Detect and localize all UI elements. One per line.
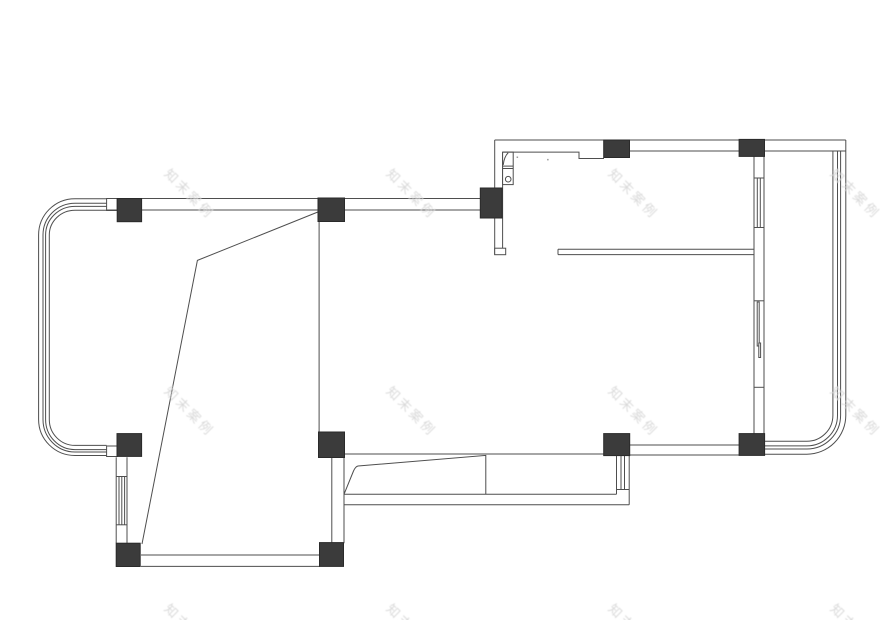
svg-text:知末案例: 知末案例 <box>161 384 217 440</box>
svg-text:知末案例: 知末案例 <box>605 601 661 620</box>
svg-text:知末案例: 知末案例 <box>605 166 661 222</box>
svg-text:知末案例: 知末案例 <box>383 166 439 222</box>
svg-text:知末案例: 知末案例 <box>827 601 880 620</box>
svg-text:知末案例: 知末案例 <box>827 166 880 222</box>
svg-text:知末案例: 知末案例 <box>605 384 661 440</box>
svg-text:知末案例: 知末案例 <box>161 601 217 620</box>
svg-text:知末案例: 知末案例 <box>383 384 439 440</box>
svg-text:知末案例: 知末案例 <box>383 601 439 620</box>
svg-text:知末案例: 知末案例 <box>827 384 880 440</box>
svg-text:知末案例: 知末案例 <box>161 166 217 222</box>
